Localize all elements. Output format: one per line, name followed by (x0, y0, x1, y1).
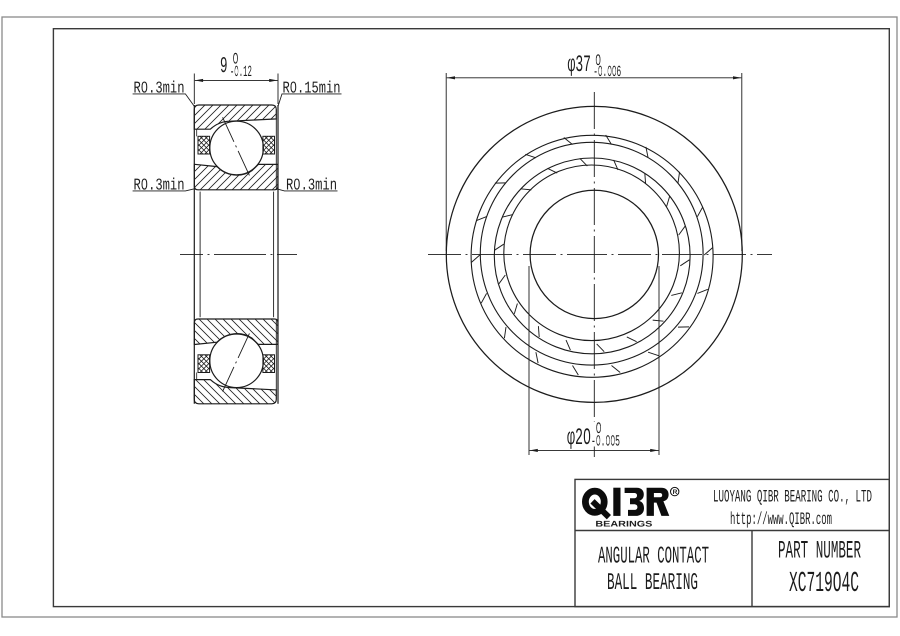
svg-text:R0.15min: R0.15min (283, 79, 341, 98)
svg-text:ANGULAR CONTACT: ANGULAR CONTACT (598, 544, 709, 571)
svg-text:φ37: φ37 (568, 52, 592, 79)
svg-text:R0.3min: R0.3min (134, 176, 185, 195)
svg-text:LUOYANG QIBR BEARING CO., LTD: LUOYANG QIBR BEARING CO., LTD (713, 488, 872, 508)
svg-text:R0.3min: R0.3min (286, 176, 337, 195)
svg-text:http://www.QIBR.com: http://www.QIBR.com (730, 510, 832, 530)
svg-text:-0.006: -0.006 (593, 63, 621, 81)
svg-text:R: R (673, 489, 678, 496)
svg-text:XC719O4C: XC719O4C (789, 567, 859, 600)
svg-text:BEARINGS: BEARINGS (595, 520, 653, 529)
svg-text:BALL BEARING: BALL BEARING (607, 570, 698, 597)
svg-text:-0.005: -0.005 (591, 432, 620, 450)
svg-text:9: 9 (220, 53, 228, 79)
svg-text:R0.3min: R0.3min (134, 79, 185, 98)
svg-text:PART NUMBER: PART NUMBER (778, 537, 861, 566)
svg-text:-0.12: -0.12 (230, 63, 252, 81)
